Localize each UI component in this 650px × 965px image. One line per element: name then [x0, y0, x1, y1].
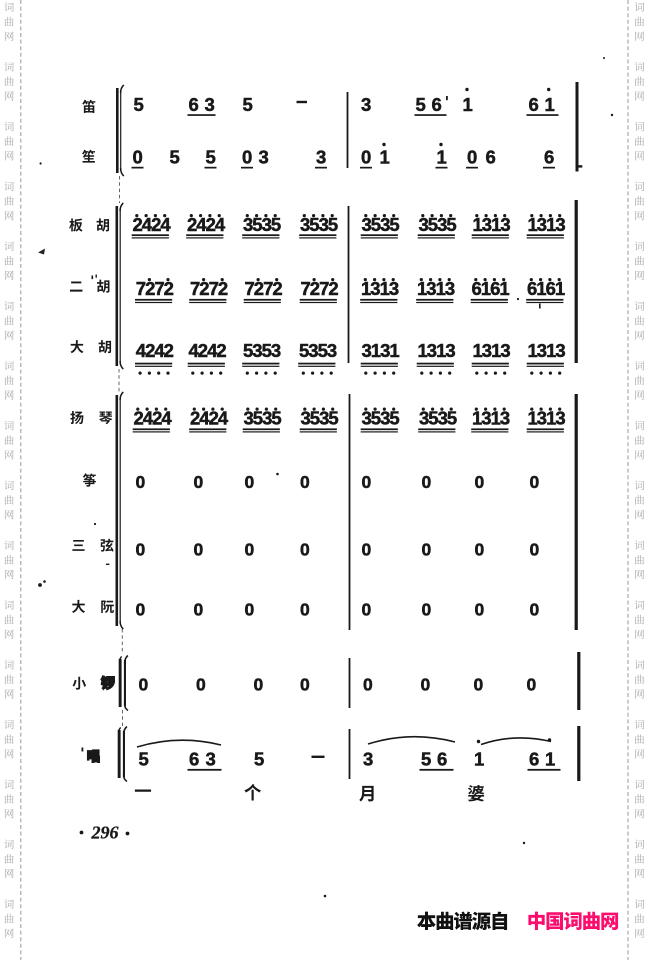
svg-text:5: 5 [139, 749, 149, 770]
svg-text:5: 5 [416, 94, 426, 115]
svg-text:1: 1 [545, 94, 555, 115]
svg-text:0: 0 [422, 600, 432, 620]
svg-text:1313: 1313 [418, 340, 456, 361]
svg-text:6: 6 [486, 147, 496, 168]
svg-text:1: 1 [545, 749, 555, 770]
svg-text:3: 3 [259, 147, 269, 168]
svg-text:5: 5 [421, 749, 431, 770]
svg-text:5: 5 [170, 147, 180, 168]
svg-text:0: 0 [300, 675, 310, 695]
svg-text:1: 1 [463, 94, 473, 115]
svg-text:0: 0 [361, 147, 371, 168]
svg-text:0: 0 [242, 147, 252, 168]
svg-text:5: 5 [206, 147, 216, 168]
svg-text:0: 0 [300, 472, 310, 492]
svg-text:0: 0 [527, 675, 537, 695]
svg-text:5: 5 [134, 94, 144, 115]
svg-text:0: 0 [362, 472, 372, 492]
svg-text:3: 3 [363, 749, 373, 770]
svg-text:0: 0 [136, 600, 146, 620]
svg-text:2424: 2424 [187, 214, 226, 235]
svg-text:1313: 1313 [473, 340, 511, 361]
svg-text:0: 0 [421, 675, 431, 695]
svg-text:2424: 2424 [190, 408, 229, 429]
svg-text:0: 0 [475, 472, 485, 492]
svg-text:5: 5 [254, 749, 264, 770]
svg-text:0: 0 [194, 600, 204, 620]
svg-text:0: 0 [300, 540, 310, 560]
svg-text:0: 0 [245, 540, 255, 560]
svg-text:6: 6 [529, 749, 539, 770]
svg-text:0: 0 [475, 540, 485, 560]
svg-text:5353: 5353 [299, 340, 337, 361]
svg-text:1: 1 [474, 749, 484, 770]
svg-text:6: 6 [432, 94, 442, 115]
svg-text:0: 0 [245, 600, 255, 620]
svg-text:5353: 5353 [243, 340, 281, 361]
svg-text:0: 0 [254, 675, 264, 695]
svg-text:0: 0 [139, 675, 149, 695]
svg-text:0: 0 [136, 472, 146, 492]
svg-text:296: 296 [91, 823, 119, 843]
svg-text:6: 6 [529, 94, 539, 115]
svg-text:0: 0 [136, 540, 146, 560]
svg-text:3: 3 [205, 94, 215, 115]
svg-text:0: 0 [530, 600, 540, 620]
svg-text:0: 0 [245, 472, 255, 492]
svg-text:0: 0 [467, 147, 477, 168]
svg-text:0: 0 [300, 600, 310, 620]
svg-text:0: 0 [422, 472, 432, 492]
svg-text:2424: 2424 [134, 408, 173, 429]
svg-text:0: 0 [474, 675, 484, 695]
svg-text:4242: 4242 [189, 340, 227, 361]
svg-text:3: 3 [361, 94, 371, 115]
svg-text:0: 0 [133, 147, 143, 168]
svg-text:1: 1 [437, 147, 447, 168]
svg-text:6: 6 [437, 749, 447, 770]
svg-text:0: 0 [362, 540, 372, 560]
svg-text:4242: 4242 [136, 340, 174, 361]
svg-text:3: 3 [206, 749, 216, 770]
svg-text:0: 0 [422, 540, 432, 560]
svg-text:1: 1 [380, 147, 390, 168]
svg-text:6: 6 [189, 94, 199, 115]
svg-text:3131: 3131 [362, 340, 400, 361]
svg-text:1313: 1313 [528, 340, 566, 361]
svg-text:0: 0 [196, 675, 206, 695]
svg-text:5: 5 [243, 94, 253, 115]
svg-text:0: 0 [363, 675, 373, 695]
svg-text:2424: 2424 [133, 214, 172, 235]
svg-text:6: 6 [189, 749, 199, 770]
svg-text:0: 0 [194, 540, 204, 560]
svg-text:0: 0 [530, 472, 540, 492]
svg-text:3: 3 [316, 147, 326, 168]
svg-text:0: 0 [362, 600, 372, 620]
svg-text:0: 0 [475, 600, 485, 620]
svg-text:0: 0 [530, 540, 540, 560]
svg-text:0: 0 [194, 472, 204, 492]
svg-text:6: 6 [544, 147, 554, 168]
